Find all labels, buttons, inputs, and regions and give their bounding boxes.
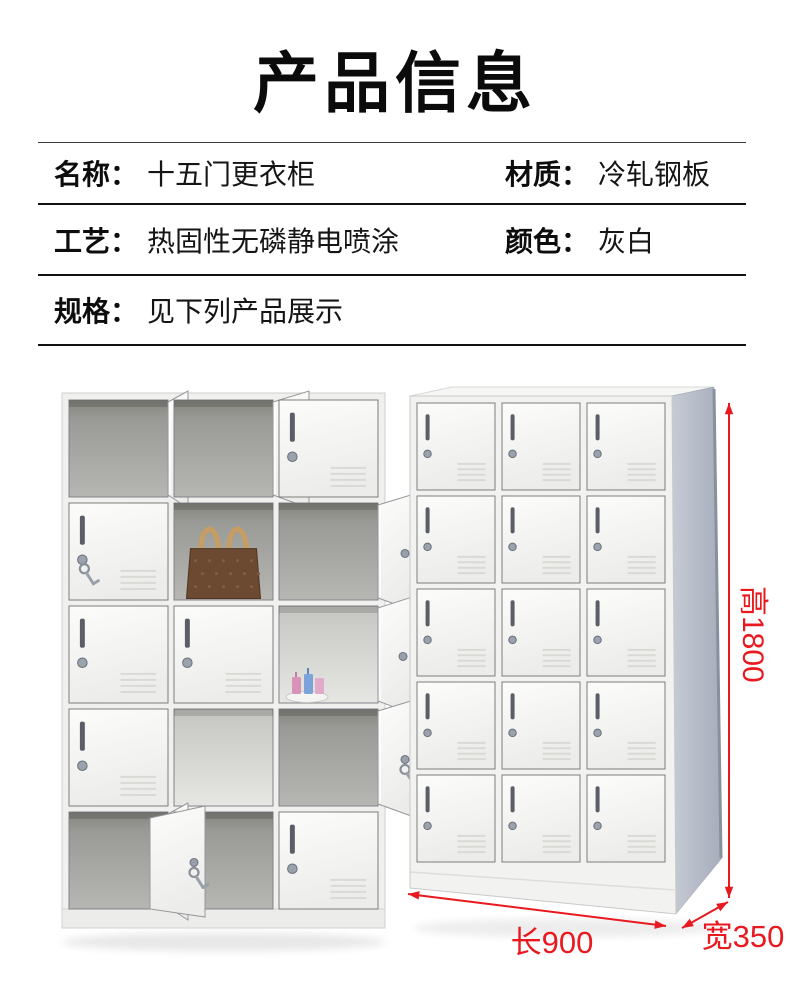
door-handle bbox=[426, 693, 430, 719]
spec-row-1: 名称： 十五门更衣柜 材质： 冷轧钢板 bbox=[38, 143, 746, 205]
spec-size-value: 见下列产品展示 bbox=[147, 290, 343, 330]
locker-door bbox=[279, 812, 378, 909]
lock-icon bbox=[424, 636, 431, 643]
bag-body bbox=[187, 549, 261, 599]
open-compartment bbox=[174, 400, 273, 497]
locker-top bbox=[410, 387, 714, 396]
locker-door bbox=[69, 503, 168, 600]
open-door bbox=[378, 597, 412, 714]
door-handle bbox=[596, 414, 600, 440]
door-handle bbox=[426, 507, 430, 533]
height-dimension-label: 高1800 bbox=[736, 586, 769, 683]
door-handle bbox=[80, 516, 85, 545]
locker-door bbox=[69, 709, 168, 806]
door-handle bbox=[511, 414, 515, 440]
height-dimension-line bbox=[725, 403, 733, 898]
spec-table: 名称： 十五门更衣柜 材质： 冷轧钢板 工艺： 热固性无磷静电喷涂 颜色： 灰白… bbox=[38, 142, 746, 346]
width-dimension-label: 宽350 bbox=[702, 919, 785, 954]
lock-icon bbox=[594, 729, 601, 736]
locker-door bbox=[417, 496, 495, 583]
spec-material-label: 材质： bbox=[505, 153, 589, 193]
lock-icon bbox=[401, 755, 409, 763]
door-handle bbox=[596, 693, 600, 719]
lock-icon bbox=[78, 555, 88, 565]
lock-icon bbox=[399, 652, 407, 660]
lock-icon bbox=[509, 450, 516, 457]
lock-icon bbox=[288, 864, 298, 874]
door-handle bbox=[511, 786, 515, 812]
lock-icon bbox=[78, 761, 88, 771]
arrowhead bbox=[716, 902, 728, 911]
spec-name: 名称： 十五门更衣柜 bbox=[38, 153, 315, 193]
spec-process: 工艺： 热固性无磷静电喷涂 bbox=[38, 220, 399, 260]
locker-door bbox=[502, 403, 580, 490]
spec-size: 规格： 见下列产品展示 bbox=[38, 290, 343, 330]
door-handle bbox=[426, 600, 430, 626]
lock-icon bbox=[509, 636, 516, 643]
door-handle bbox=[185, 619, 190, 648]
lock-icon bbox=[288, 452, 298, 462]
lock-icon bbox=[594, 543, 601, 550]
locker-door bbox=[587, 775, 665, 862]
open-compartment bbox=[69, 400, 168, 497]
lock-icon bbox=[509, 822, 516, 829]
door-handle bbox=[290, 413, 295, 442]
door-handle bbox=[511, 507, 515, 533]
locker-door bbox=[417, 775, 495, 862]
lock-icon bbox=[424, 729, 431, 736]
spec-row-2: 工艺： 热固性无磷静电喷涂 颜色： 灰白 bbox=[38, 205, 746, 276]
door-handle bbox=[80, 619, 85, 648]
lock-icon bbox=[424, 450, 431, 457]
locker-door bbox=[502, 496, 580, 583]
locker-door bbox=[69, 606, 168, 703]
product-photos: 高1800长900宽350 bbox=[0, 358, 790, 1002]
spec-color-value: 灰白 bbox=[598, 220, 654, 260]
left-locker-shadow bbox=[62, 933, 386, 951]
open-compartment bbox=[279, 606, 378, 703]
length-dimension-label: 长900 bbox=[511, 925, 594, 960]
arrowhead bbox=[725, 403, 733, 414]
locker-door bbox=[417, 403, 495, 490]
spec-material: 材质： 冷轧钢板 bbox=[505, 143, 710, 203]
lock-icon bbox=[594, 636, 601, 643]
locker-door bbox=[502, 682, 580, 769]
open-compartment bbox=[279, 503, 378, 600]
locker-base bbox=[62, 909, 385, 928]
lock-icon bbox=[594, 450, 601, 457]
open-door bbox=[150, 806, 208, 917]
page-title: 产品信息 bbox=[0, 30, 790, 126]
door-handle bbox=[596, 507, 600, 533]
door-handle bbox=[426, 414, 430, 440]
open-door bbox=[378, 494, 414, 611]
lock-icon bbox=[78, 658, 88, 668]
spec-process-value: 热固性无磷静电喷涂 bbox=[147, 220, 399, 260]
spec-row-3: 规格： 见下列产品展示 bbox=[38, 276, 746, 346]
lock-icon bbox=[594, 822, 601, 829]
cup bbox=[315, 678, 324, 694]
locker-door bbox=[587, 403, 665, 490]
cup bbox=[304, 674, 313, 694]
locker-door bbox=[587, 682, 665, 769]
lock-icon bbox=[509, 543, 516, 550]
open-compartment bbox=[174, 709, 273, 806]
arrowhead bbox=[725, 887, 733, 898]
right-locker-photo bbox=[410, 387, 722, 914]
door-handle bbox=[596, 786, 600, 812]
spec-color: 颜色： 灰白 bbox=[505, 205, 654, 274]
cup bbox=[292, 677, 301, 694]
spec-color-label: 颜色： bbox=[505, 220, 589, 260]
spec-name-value: 十五门更衣柜 bbox=[147, 153, 315, 193]
open-compartment bbox=[279, 709, 378, 806]
lock-icon bbox=[424, 543, 431, 550]
locker-door bbox=[502, 589, 580, 676]
open-compartment bbox=[174, 503, 273, 600]
spec-size-label: 规格： bbox=[54, 290, 138, 330]
locker-door bbox=[174, 606, 273, 703]
door-handle bbox=[511, 600, 515, 626]
locker-door bbox=[587, 589, 665, 676]
locker-door bbox=[502, 775, 580, 862]
lock-icon bbox=[401, 549, 409, 557]
left-locker-photo bbox=[62, 391, 419, 928]
locker-door bbox=[279, 400, 378, 497]
locker-door bbox=[417, 589, 495, 676]
spec-process-label: 工艺： bbox=[54, 220, 138, 260]
locker-door bbox=[417, 682, 495, 769]
spec-material-value: 冷轧钢板 bbox=[598, 153, 710, 193]
lock-icon bbox=[424, 822, 431, 829]
door-handle bbox=[290, 825, 295, 854]
lock-icon bbox=[509, 729, 516, 736]
door-handle bbox=[596, 600, 600, 626]
door-handle bbox=[511, 693, 515, 719]
spec-name-label: 名称： bbox=[54, 153, 138, 193]
lock-icon bbox=[183, 658, 193, 668]
arrowhead bbox=[408, 891, 420, 899]
lock-icon bbox=[190, 858, 198, 866]
door-handle bbox=[426, 786, 430, 812]
locker-door bbox=[587, 496, 665, 583]
door-handle bbox=[80, 722, 85, 751]
